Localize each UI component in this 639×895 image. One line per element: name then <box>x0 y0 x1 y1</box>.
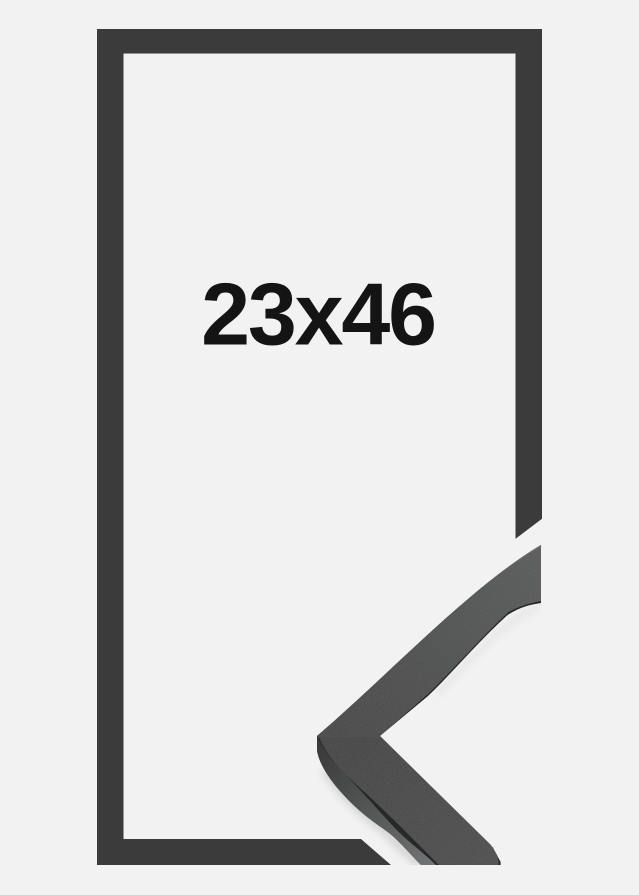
svg-text:23x46: 23x46 <box>201 265 435 364</box>
